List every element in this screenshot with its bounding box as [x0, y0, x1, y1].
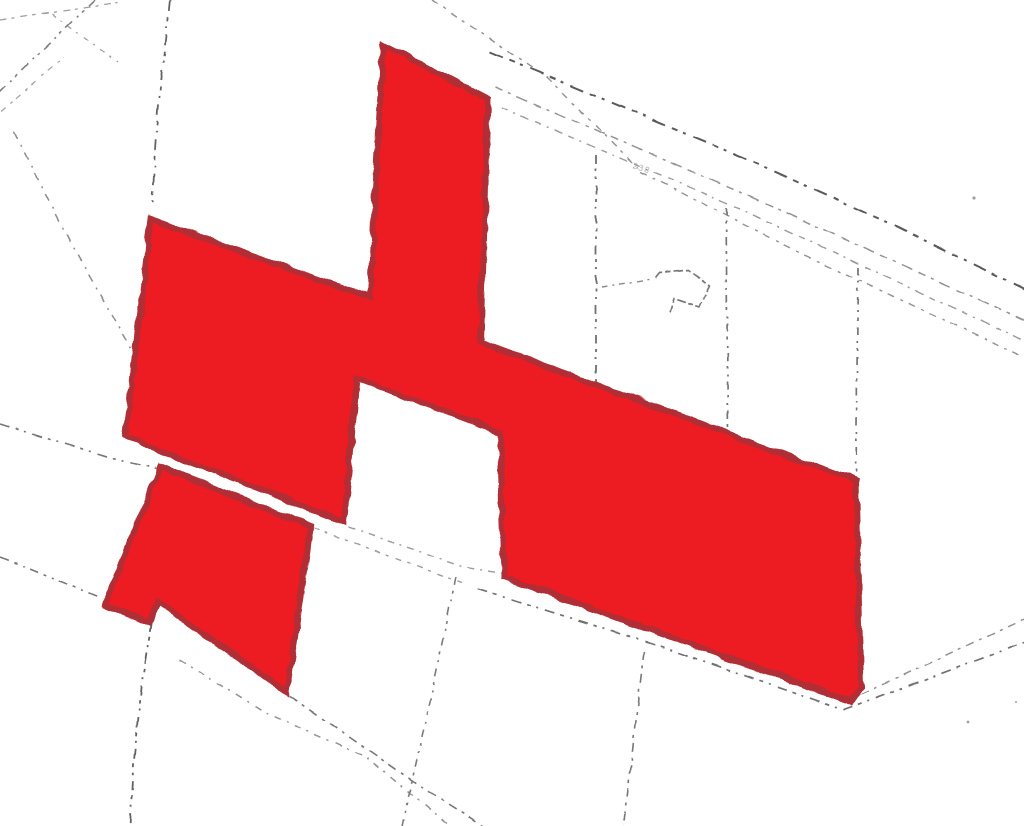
scan-speck — [1015, 701, 1017, 703]
tl-cross-line-b — [0, 57, 64, 112]
tl-cross-line-a — [52, 14, 118, 62]
tl-top-edge-line — [0, 3, 118, 20]
road-tr-line-1 — [490, 52, 1024, 289]
scan-specks — [967, 196, 1017, 723]
building-lead-line — [601, 279, 652, 287]
scan-speck — [972, 196, 975, 199]
building-outline — [656, 270, 710, 312]
road-tr-line-2 — [495, 87, 1024, 320]
boundary-vert-2 — [726, 208, 728, 435]
boundary-vert-3 — [856, 267, 858, 478]
road-bl-line-c — [180, 660, 450, 826]
boundary-vert-b3 — [624, 651, 644, 826]
cadastral-map-scan: 238 — [0, 0, 1024, 826]
boundary-vert-b2 — [402, 577, 456, 826]
highlighted-parcel-small — [105, 467, 311, 692]
map-canvas: 238 — [0, 0, 1024, 826]
tl-vertical-line — [152, 0, 170, 207]
road-bl-line-b — [290, 696, 483, 826]
road-bl-line-a — [0, 557, 103, 599]
highlighted-parcels — [105, 44, 861, 701]
tl-steep-line — [14, 132, 133, 352]
scan-speck — [967, 721, 970, 724]
road-right-upper-line — [862, 619, 1024, 694]
parcel-top-ext-line — [313, 528, 462, 583]
road-tr-line-4 — [640, 172, 1024, 357]
boundary-vert-b1 — [130, 622, 152, 826]
road-tr-line-3 — [502, 108, 1024, 341]
